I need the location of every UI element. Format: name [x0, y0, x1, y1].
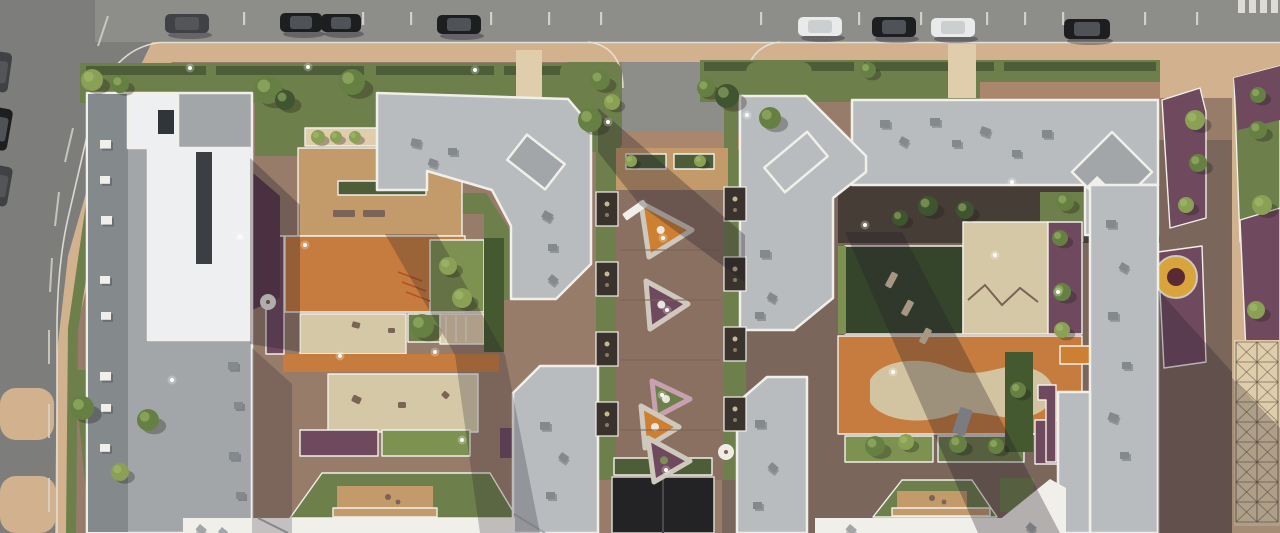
niche-table: [605, 272, 610, 277]
tree-highlight: [113, 465, 121, 473]
vent-box: [880, 120, 890, 128]
light-dot: [1010, 180, 1014, 184]
vent-box: [753, 502, 762, 509]
hedge-segment: [1004, 62, 1156, 71]
vent-box: [548, 244, 557, 251]
tree-highlight: [990, 440, 997, 447]
crosswalk-stripe: [1271, 0, 1278, 13]
parked-car: [321, 14, 364, 38]
slanted-bed-d: [1240, 208, 1280, 352]
vent-box: [546, 492, 555, 499]
parking-tick: [362, 12, 364, 25]
tree-highlight: [1058, 195, 1066, 203]
prop: [398, 402, 406, 408]
light-dot: [606, 120, 610, 124]
vent-box: [952, 140, 961, 147]
parking-tick: [1144, 12, 1146, 25]
parking-tick: [490, 12, 492, 25]
tree-highlight: [1012, 384, 1019, 391]
light-dot: [993, 253, 997, 257]
building-east-wing-right-block: [1090, 185, 1158, 533]
light-dot: [891, 370, 895, 374]
light-dot: [664, 468, 668, 472]
parking-tick: [243, 12, 245, 25]
brick-band-ne: [980, 82, 1160, 100]
tree-highlight: [342, 72, 354, 84]
vent-box: [101, 216, 112, 225]
bed-center-dot: [660, 456, 668, 464]
vent-box: [228, 362, 238, 370]
niche-chair: [605, 283, 609, 287]
entry-path-right: [948, 44, 976, 98]
car-roof: [808, 20, 832, 33]
path-light: [236, 233, 245, 242]
vent-box: [101, 312, 111, 320]
parked-car: [437, 15, 484, 40]
curb-bulb-2: [0, 476, 56, 533]
prop: [363, 210, 385, 217]
niche-box: [596, 192, 618, 226]
vent-box: [100, 372, 111, 381]
niche-chair: [733, 208, 737, 212]
prop-circle: [396, 500, 401, 505]
tree-highlight: [696, 157, 701, 162]
site-plan-render: [0, 0, 1280, 533]
car-roof: [941, 21, 965, 34]
vent-box: [229, 452, 239, 460]
tree-highlight: [1252, 89, 1259, 96]
prop-rect: [363, 210, 385, 217]
building-mid-south-right: [737, 377, 807, 533]
parking-tick: [410, 12, 412, 25]
tree-highlight: [1054, 232, 1061, 239]
tree-highlight: [1191, 156, 1199, 164]
path-light: [304, 63, 313, 72]
green-strip: [838, 246, 846, 334]
vent-box: [236, 492, 245, 499]
tree-highlight: [351, 133, 356, 138]
parked-car: [798, 17, 845, 42]
light-dot: [473, 68, 477, 72]
tree-highlight: [921, 199, 930, 208]
sand-climb: [963, 222, 1048, 334]
seating-niche: [596, 402, 618, 436]
prop-circle: [942, 500, 947, 505]
parking-tick: [600, 12, 602, 25]
bed-center-dot: [657, 226, 665, 234]
light-dot: [863, 223, 867, 227]
path-light: [168, 376, 177, 385]
tree-highlight: [593, 73, 602, 82]
niche-chair: [733, 418, 737, 422]
prop-circle: [385, 494, 391, 500]
tree-highlight: [113, 77, 121, 85]
vent-box: [930, 118, 940, 126]
tree-highlight: [762, 110, 772, 120]
building-south-slab-left: [183, 518, 515, 533]
light-dot: [1056, 290, 1060, 294]
path-light: [659, 234, 668, 243]
light-dot: [745, 113, 749, 117]
car-roof: [331, 17, 351, 29]
tree-highlight: [718, 87, 729, 98]
tree-highlight: [140, 412, 150, 422]
seating-niche: [596, 192, 618, 226]
path-light: [471, 66, 480, 75]
tower-windows: [158, 110, 174, 134]
tree-highlight: [455, 291, 464, 300]
vent-box: [100, 444, 110, 452]
parking-tick: [1196, 12, 1198, 25]
parked-car: [872, 17, 919, 43]
parking-tick: [760, 12, 762, 25]
tree-highlight: [1249, 303, 1257, 311]
parking-tick: [920, 12, 922, 25]
light-dot: [188, 66, 192, 70]
light-dot: [303, 243, 307, 247]
light-dot: [238, 235, 242, 239]
entry-path-left: [516, 50, 542, 100]
tree-highlight: [332, 133, 337, 138]
niche-table: [605, 412, 610, 417]
light-dot: [170, 378, 174, 382]
curb-bulb-1: [0, 388, 54, 440]
path-light: [604, 118, 613, 127]
tree-highlight: [958, 203, 966, 211]
path-light: [458, 436, 467, 445]
path-light: [336, 352, 345, 361]
vent-box: [755, 420, 765, 428]
parking-tick: [858, 12, 860, 25]
vent-box: [1120, 452, 1129, 459]
path-light: [1054, 288, 1063, 297]
path-light: [662, 466, 671, 475]
tree-highlight: [862, 64, 869, 71]
tree-highlight: [1180, 199, 1187, 206]
niche-box: [596, 332, 618, 366]
prop-rect: [388, 328, 395, 333]
tree-highlight: [73, 399, 84, 410]
seating-niche: [724, 397, 746, 431]
path-light: [301, 241, 310, 250]
vent-box: [100, 276, 110, 284]
crosswalk-stripe: [1249, 0, 1256, 13]
niche-table: [605, 202, 610, 207]
parking-tick: [1024, 12, 1026, 25]
parked-car: [931, 18, 978, 43]
planter-south-1: [300, 430, 378, 456]
tree-highlight: [606, 96, 613, 103]
tree-highlight: [627, 157, 632, 162]
tree-highlight: [1251, 123, 1259, 131]
parking-tick: [1062, 12, 1064, 25]
niche-chair: [605, 423, 609, 427]
tree-highlight: [1188, 113, 1197, 122]
pavilion-left-deck: [337, 486, 433, 510]
prop-circle: [724, 450, 728, 454]
path-light: [991, 251, 1000, 260]
niche-chair: [733, 348, 737, 352]
vent-box: [760, 250, 770, 258]
tree-highlight: [699, 81, 707, 89]
niche-box: [596, 262, 618, 296]
niche-box: [724, 187, 746, 221]
path-light: [186, 64, 195, 73]
tree-highlight: [868, 439, 877, 448]
car-roof: [175, 17, 199, 30]
light-dot: [433, 350, 437, 354]
path-light: [861, 221, 870, 230]
tree-highlight: [313, 132, 319, 138]
vent-box: [101, 404, 111, 412]
niche-table: [605, 342, 610, 347]
tree-highlight: [441, 259, 449, 267]
niche-table: [733, 407, 738, 412]
seating-niche: [596, 262, 618, 296]
tree-highlight: [581, 111, 592, 122]
sand-pit-upper: [300, 314, 406, 354]
tree-highlight: [1255, 198, 1264, 207]
path-light: [889, 368, 898, 377]
tree-highlight: [258, 80, 271, 93]
prop: [388, 328, 395, 333]
aerial-render-viewport: [0, 0, 1280, 533]
hedge-segment: [216, 66, 364, 75]
car-roof: [882, 20, 906, 34]
parking-tick: [986, 12, 988, 25]
car-roof: [447, 18, 471, 31]
path-light: [663, 306, 672, 315]
vent-box: [1012, 150, 1021, 157]
vent-box: [755, 312, 764, 319]
niche-chair: [605, 353, 609, 357]
seating-niche: [724, 187, 746, 221]
light-dot: [661, 236, 665, 240]
niche-chair: [733, 278, 737, 282]
prop-rect: [333, 210, 355, 217]
parked-car: [280, 13, 325, 38]
light-dot: [660, 393, 664, 397]
path-light: [658, 391, 667, 400]
tower-slot: [196, 152, 212, 264]
niche-chair: [605, 213, 609, 217]
niche-box: [724, 327, 746, 361]
crosswalk-stripe: [1238, 0, 1245, 13]
tree-highlight: [84, 72, 94, 82]
planter-south-2: [382, 430, 470, 456]
niche-table: [733, 337, 738, 342]
prop: [333, 210, 355, 217]
seating-niche: [596, 332, 618, 366]
vent-box: [1106, 220, 1116, 228]
parking-tick: [548, 12, 550, 25]
tree-highlight: [1056, 324, 1063, 331]
niche-box: [596, 402, 618, 436]
crosswalk-stripe: [1260, 0, 1267, 13]
path-light: [431, 348, 440, 357]
vent-box: [1108, 312, 1118, 320]
round-flower-bed-center: [1167, 268, 1185, 286]
light-dot: [665, 308, 669, 312]
parked-car: [165, 14, 212, 39]
vent-box: [234, 402, 243, 409]
car-roof: [1074, 22, 1100, 36]
vent-box: [540, 422, 550, 430]
vent-box: [1122, 362, 1131, 369]
niche-table: [733, 197, 738, 202]
vent-box: [448, 148, 457, 155]
path-light: [743, 111, 752, 120]
vent-box: [100, 140, 111, 149]
sidewalk-top: [152, 42, 1280, 62]
seating-niche: [724, 327, 746, 361]
light-dot: [306, 65, 310, 69]
tree-highlight: [894, 212, 901, 219]
path-light: [1008, 178, 1017, 187]
vent-box: [100, 176, 110, 184]
prop-circle: [929, 495, 935, 501]
prop-rect: [398, 402, 406, 408]
tree-highlight: [900, 436, 907, 443]
light-dot: [460, 438, 464, 442]
parked-car: [1064, 19, 1113, 45]
tree-highlight: [951, 437, 959, 445]
car-roof: [290, 16, 312, 29]
vent-box: [1042, 130, 1052, 138]
tree-highlight: [413, 317, 424, 328]
tree-highlight: [278, 93, 287, 102]
pavilion-left-bench: [333, 508, 437, 517]
light-dot: [338, 354, 342, 358]
niche-box: [724, 397, 746, 431]
